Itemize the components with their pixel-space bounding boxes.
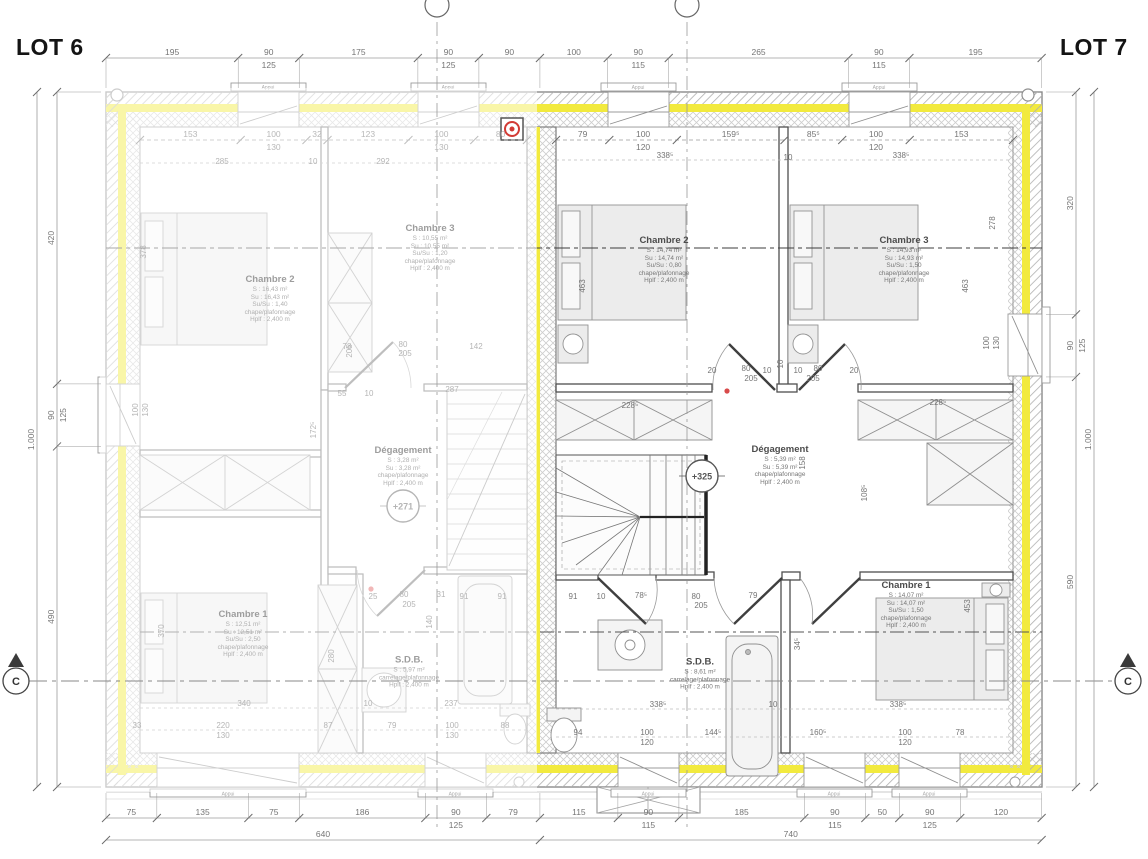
staircase-lot7 (556, 455, 706, 575)
dim-label: 100 (640, 728, 654, 737)
dim-label: 31 (437, 590, 446, 599)
dim-label: 640 (316, 829, 330, 839)
dim-label: 123 (361, 129, 375, 139)
dim-label: 130 (141, 403, 150, 417)
dim-label: 34⁵ (793, 638, 802, 650)
dim-chain-bottom-outer: 7513575186901257911590115185901155090125… (102, 793, 1046, 830)
dim-label: 120 (994, 807, 1008, 817)
dim-label: 79 (578, 129, 588, 139)
dim-label: 10 (794, 366, 803, 375)
dim-label: 33 (133, 721, 142, 730)
dim-label: 338⁵ (893, 151, 910, 160)
lot6-fade-overlay (100, 88, 537, 792)
window: Appui (892, 753, 967, 798)
dim-label: 90 (925, 807, 935, 817)
dim-label: 90 (874, 47, 884, 57)
dim-label: 490 (46, 609, 56, 623)
nightstand (982, 583, 1010, 597)
dim-label: 195 (968, 47, 982, 57)
nightstand (788, 325, 818, 363)
dim-label: 20 (708, 366, 717, 375)
dim-label: 153 (183, 129, 197, 139)
svg-text:Appui: Appui (828, 792, 841, 798)
dim-label: 85⁵ (807, 129, 820, 139)
dim-label: 50 (878, 807, 888, 817)
dim-label: 10 (769, 700, 778, 709)
dim-label: 144⁵ (705, 728, 722, 737)
window: Appui (842, 83, 917, 127)
dim-label: 338⁵ (650, 700, 667, 709)
dim-label: 100 (982, 336, 991, 350)
dim-label: 80 (692, 592, 701, 601)
dim-label: 130 (434, 142, 448, 152)
dim-label: 1.000 (1083, 429, 1093, 451)
floor-plan-drawing: Appui Appui Appui Appui Appui Appui Appu… (0, 0, 1148, 859)
dim-label: 378 (139, 245, 148, 259)
dim-label: 100 (898, 728, 912, 737)
dim-label: 100 (445, 721, 459, 730)
dim-label: 78⁵ (635, 591, 647, 600)
dim-label: 125 (441, 60, 455, 70)
dim-label: 463 (961, 279, 970, 293)
dim-label: 78 (956, 728, 965, 737)
dim-label: 205 (744, 374, 758, 383)
dim-label: 228⁵ (622, 401, 639, 410)
dim-label: 160⁵ (810, 728, 827, 737)
dim-label: 237 (444, 699, 458, 708)
dim-label: 90 (644, 807, 654, 817)
dim-label: 195 (165, 47, 179, 57)
dim-label: 25 (369, 592, 378, 601)
dim-label: 338⁵ (657, 151, 674, 160)
dim-label: 90 (46, 410, 56, 420)
dim-label: 75 (127, 807, 137, 817)
bed (790, 205, 918, 320)
dim-label: 140 (425, 615, 434, 629)
dim-label: 220 (216, 721, 230, 730)
dim-label: 90 (830, 807, 840, 817)
dim-label: 91 (460, 592, 469, 601)
svg-text:Appui: Appui (222, 792, 235, 798)
dim-label: 175 (351, 47, 365, 57)
dim-label: 159⁵ (722, 129, 740, 139)
dim-label: 120 (869, 142, 883, 152)
dim-label: 80 (814, 364, 823, 373)
dim-label: 79 (508, 807, 518, 817)
dim-label: 10 (364, 699, 373, 708)
nightstand (558, 325, 588, 363)
dim-label: 115 (572, 807, 586, 817)
dim-label: 420 (46, 231, 56, 245)
dim-label: 130 (992, 336, 1001, 350)
svg-text:Appui: Appui (873, 85, 886, 91)
dim-label: 79 (388, 721, 397, 730)
bed (558, 205, 686, 320)
dim-label: 265 (751, 47, 765, 57)
section-marker-right: C (1115, 653, 1141, 694)
dim-label: 205 (398, 349, 412, 358)
dim-label: 87 (324, 721, 333, 730)
dim-label: 90 (633, 47, 643, 57)
svg-text:Appui: Appui (632, 85, 645, 91)
window: Appui (611, 753, 686, 798)
dim-chain-left-outer: 42090125490 (46, 88, 101, 791)
dim-label: 20 (850, 366, 859, 375)
dim-label: 205 (806, 374, 820, 383)
dim-label: 91 (569, 592, 578, 601)
dim-label: 90 (505, 47, 515, 57)
dim-label: 10 (763, 366, 772, 375)
dim-chain-bottom-total: 640740 (102, 829, 1046, 844)
dim-label: 278 (988, 216, 997, 230)
dim-label: 10 (597, 592, 606, 601)
dim-label: 280 (327, 649, 336, 663)
dim-label: 115 (631, 60, 645, 70)
svg-text:+325: +325 (692, 472, 712, 482)
dim-label: 80 (742, 364, 751, 373)
dim-label: 100 (869, 129, 883, 139)
dim-label: 80 (400, 590, 409, 599)
dim-label: 120 (898, 738, 912, 747)
dim-label: 90 (264, 47, 274, 57)
dim-label: 292 (376, 157, 390, 166)
dim-label: 740 (784, 829, 798, 839)
dim-label: 10 (784, 153, 793, 162)
dim-label: 94 (574, 728, 583, 737)
dim-label: 153 (954, 129, 968, 139)
dim-label: 10 (309, 157, 318, 166)
window (1008, 307, 1050, 383)
svg-text:C: C (1124, 676, 1132, 688)
dim-label: 125 (923, 820, 937, 830)
dim-label: 90 (444, 47, 454, 57)
dim-label: 172⁵ (309, 422, 318, 439)
dim-label: 120 (636, 142, 650, 152)
dim-label: 100 (636, 129, 650, 139)
dim-label: 158 (798, 456, 807, 470)
dim-label: 10 (776, 359, 785, 368)
dim-label: 370 (157, 624, 166, 638)
dim-label: 88 (501, 721, 510, 730)
dim-label: 100 (266, 129, 280, 139)
dim-label: 55 (338, 389, 347, 398)
dim-label: 185 (735, 807, 749, 817)
lot7-title: LOT 7 (1060, 34, 1128, 61)
dim-label: 463 (578, 279, 587, 293)
dim-label: 125 (262, 60, 276, 70)
dim-label: 108⁵ (860, 485, 869, 502)
dim-label: 32 (312, 129, 322, 139)
window: Appui (601, 83, 676, 127)
detector-dot (724, 388, 729, 393)
dim-label: 135 (196, 807, 210, 817)
dim-label: 120 (640, 738, 654, 747)
dim-label: 142 (469, 342, 483, 351)
dim-label: 590 (1065, 575, 1075, 589)
dim-label: 205 (402, 600, 416, 609)
dim-label: 340 (237, 699, 251, 708)
dim-label: 80 (496, 129, 506, 139)
dim-label: 205 (694, 601, 708, 610)
dim-label: 90 (1065, 341, 1075, 351)
dim-chain-right-outer: 32090125590 (1046, 88, 1087, 791)
svg-text:Appui: Appui (449, 792, 462, 798)
bed (876, 598, 1008, 700)
dim-label: 80 (399, 340, 408, 349)
svg-text:Appui: Appui (923, 792, 936, 798)
dim-label: 1.000 (26, 429, 36, 451)
dim-chain-top-outer: 1959012517590125901009011526590115195 (102, 47, 1046, 88)
dim-chain-right-total: 1.000 (1083, 88, 1098, 791)
dim-label: 130 (216, 731, 230, 740)
svg-text:+271: +271 (393, 502, 413, 512)
dim-label: 91 (498, 592, 507, 601)
vanity-sink (598, 620, 662, 670)
svg-text:Appui: Appui (642, 792, 655, 798)
dim-label: 287 (445, 385, 459, 394)
svg-text:C: C (12, 676, 20, 688)
dim-label: 100 (567, 47, 581, 57)
dim-label: 75 (269, 807, 279, 817)
dim-label: 320 (1065, 196, 1075, 210)
dim-label: 338⁵ (890, 700, 907, 709)
dim-label: 285 (215, 157, 229, 166)
dim-label: 100 (131, 403, 140, 417)
dim-label: 78 (343, 342, 352, 351)
dim-label: 186 (355, 807, 369, 817)
section-marker-left: C (3, 653, 29, 694)
dim-label: 10 (365, 389, 374, 398)
dim-label: 130 (445, 731, 459, 740)
dim-label: 115 (642, 820, 656, 830)
dim-label: 228⁵ (930, 398, 947, 407)
dim-label: 453 (963, 599, 972, 613)
dim-label: 100 (434, 129, 448, 139)
dim-label: 125 (449, 820, 463, 830)
dim-label: 115 (828, 820, 842, 830)
lot6-title: LOT 6 (16, 34, 84, 61)
dim-label: 125 (58, 408, 68, 422)
window: Appui (797, 753, 872, 798)
dim-label: 79 (749, 591, 758, 600)
dim-label: 115 (872, 60, 886, 70)
dim-label: 130 (266, 142, 280, 152)
floor-plan-page: Appui Appui Appui Appui Appui Appui Appu… (0, 0, 1148, 859)
dim-label: 125 (1077, 338, 1087, 352)
dim-label: 90 (451, 807, 461, 817)
